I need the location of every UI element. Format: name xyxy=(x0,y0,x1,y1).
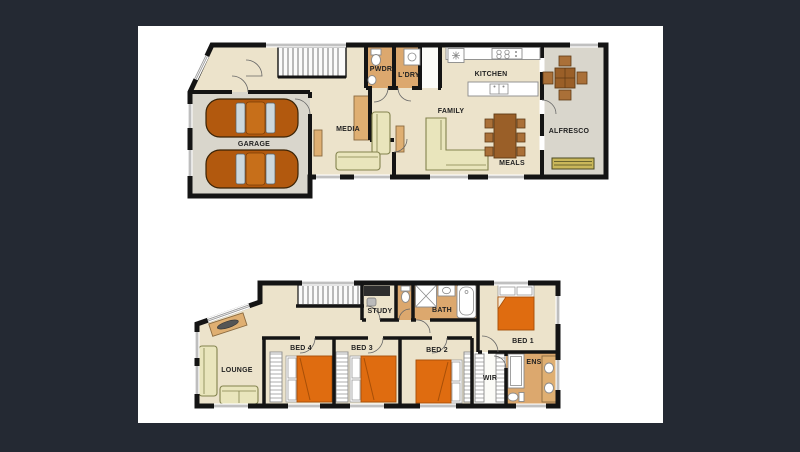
floor-plan-page: GARAGE MEDIA FAMILY KITCHEN MEALS ALFRES… xyxy=(0,0,800,452)
bed-icon xyxy=(350,356,396,402)
bed1-label: BED 1 xyxy=(512,338,534,345)
kitchen-label: KITCHEN xyxy=(475,71,508,78)
car-icon xyxy=(206,99,298,137)
wardrobe-icon xyxy=(270,352,282,402)
bed4-label: BED 4 xyxy=(290,345,312,352)
basin-icon xyxy=(438,285,455,296)
bed3-label: BED 3 xyxy=(351,345,373,352)
ens-label: ENS xyxy=(526,359,541,366)
bed2-label: BED 2 xyxy=(426,347,448,354)
basin-icon xyxy=(368,76,376,85)
powder-label: PWDR xyxy=(370,66,392,73)
bed-icon xyxy=(498,285,534,330)
dining-table-icon xyxy=(485,114,525,158)
bench-seat-icon xyxy=(552,158,594,169)
bed-icon xyxy=(416,360,462,403)
wardrobe-icon xyxy=(336,352,348,402)
stairs-icon xyxy=(298,285,362,305)
ensuite-shower-icon xyxy=(508,354,524,388)
study-label: STUDY xyxy=(368,308,393,315)
floor-plan-canvas: GARAGE MEDIA FAMILY KITCHEN MEALS ALFRES… xyxy=(0,0,800,452)
bathtub-icon xyxy=(457,284,476,318)
media-side-table xyxy=(314,130,322,156)
lounge-label: LOUNGE xyxy=(221,367,253,374)
laundry-trough-icon xyxy=(404,49,420,65)
bath-label: BATH xyxy=(432,307,452,314)
shower-icon xyxy=(416,285,437,307)
car-icon xyxy=(206,150,298,188)
media-storage xyxy=(354,96,370,140)
alfresco-label: ALFRESCO xyxy=(549,128,590,135)
toilet-icon xyxy=(508,393,524,402)
wir-label: WIR xyxy=(483,375,497,382)
ground-floor-plan: GARAGE MEDIA FAMILY KITCHEN MEALS ALFRES… xyxy=(188,43,607,197)
garage-label: GARAGE xyxy=(238,141,270,148)
linen-closet xyxy=(420,47,440,88)
bed-icon xyxy=(286,356,332,402)
toilet-icon xyxy=(371,49,381,66)
stairs-icon xyxy=(278,47,346,77)
meals-label: MEALS xyxy=(499,160,525,167)
family-label: FAMILY xyxy=(438,108,465,115)
vanity-icon xyxy=(542,356,556,402)
laundry-label: L'DRY xyxy=(398,72,420,79)
media-label: MEDIA xyxy=(336,126,360,133)
cooktop-icon xyxy=(492,49,522,60)
toilet-icon xyxy=(401,286,410,303)
